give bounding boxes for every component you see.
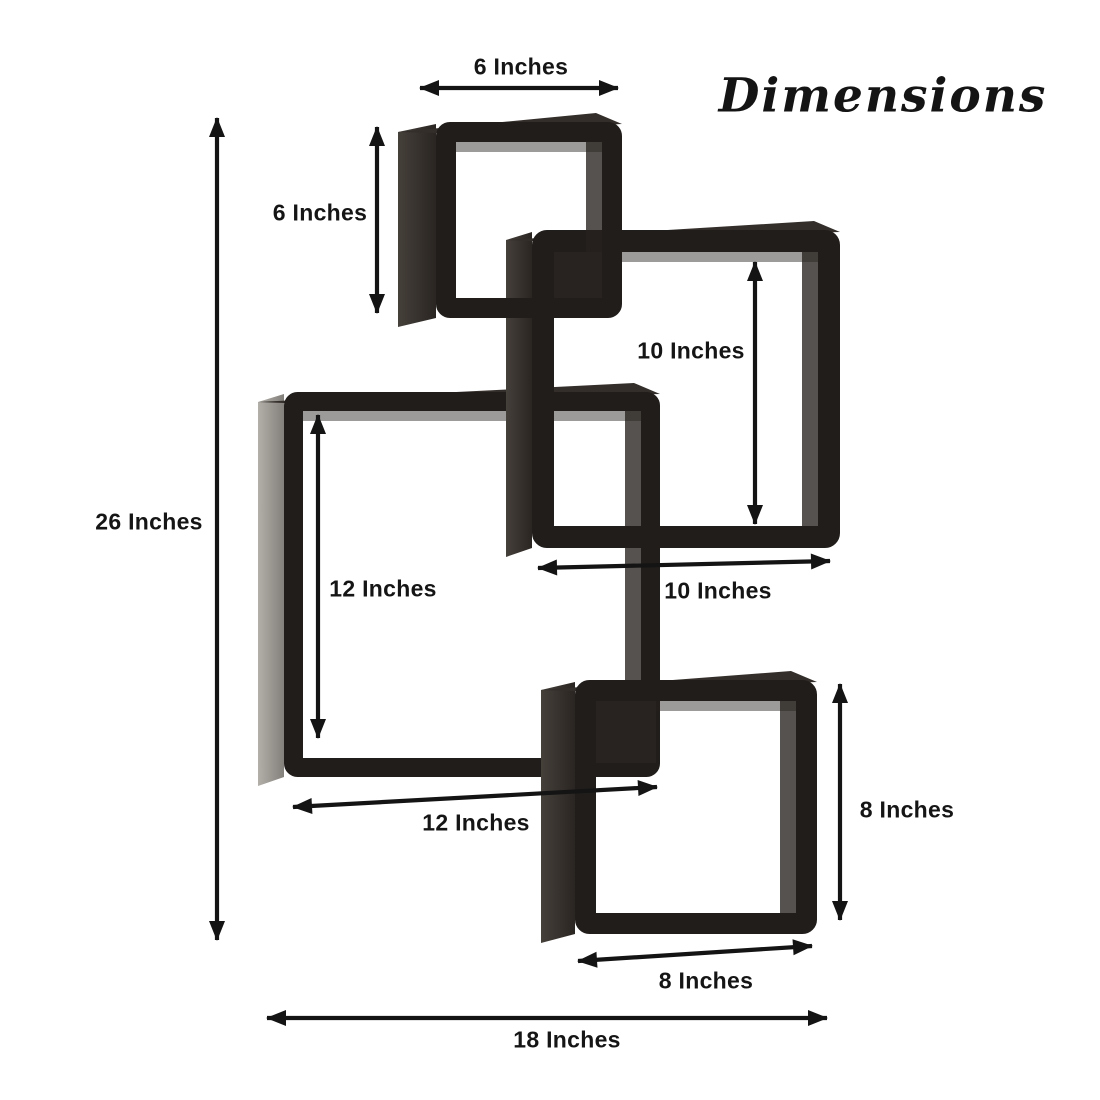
shelf-box-bottom-box-8x8 [541, 671, 817, 943]
dimension-arrow-right-box-width-10 [538, 561, 830, 568]
dimension-arrow-bottom-box-width-8 [578, 946, 812, 961]
dimensions-diagram: Dimensions 6 Inches6 Inches10 Inches10 I… [0, 0, 1100, 1100]
shelf-illustration [0, 0, 1100, 1100]
intersection-shadow [596, 701, 656, 763]
intersection-shadow [554, 252, 602, 298]
dimension-arrow-left-box-width-12 [293, 787, 657, 807]
